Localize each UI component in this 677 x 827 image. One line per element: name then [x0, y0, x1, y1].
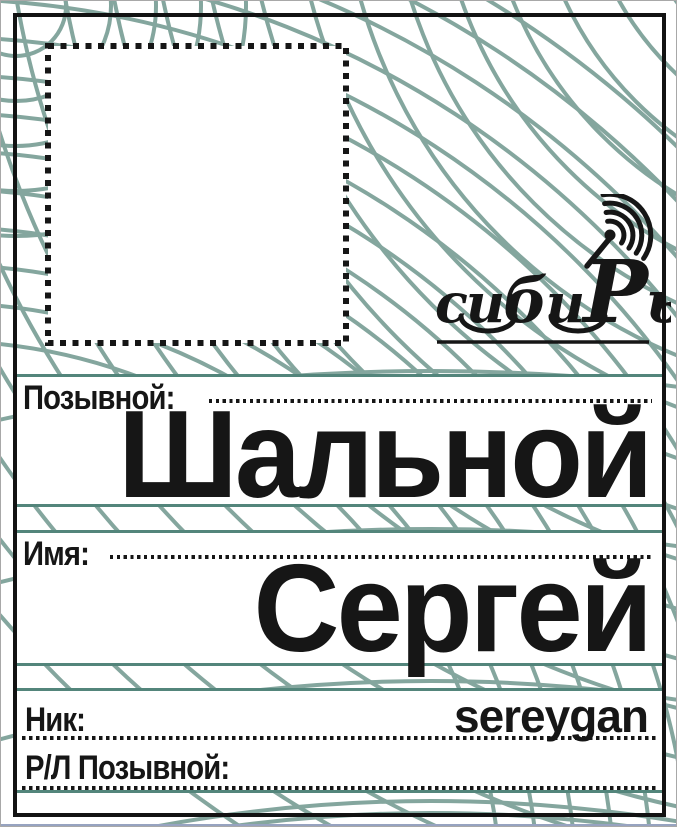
name-label: Имя:: [23, 537, 89, 571]
radio-callsign-label: Р/Л Позывной:: [25, 751, 229, 785]
name-section: Имя: Сергей: [17, 530, 662, 666]
callsign-section: Позывной: Шальной: [17, 374, 662, 507]
club-logo: сибиРь: [421, 194, 671, 359]
screenshot-bottom-edge: [1, 824, 676, 826]
nick-label: Ник:: [25, 703, 85, 737]
photo-placeholder: [45, 43, 349, 346]
badge-page: сибиРь Позывной: Шальной Имя: Сергей Ник…: [0, 0, 677, 827]
nick-section: Ник: sereygan Р/Л Позывной:: [17, 688, 662, 793]
name-value: Сергей: [253, 547, 650, 671]
nick-value: sereygan: [454, 693, 648, 739]
photo-dashed-frame: [45, 43, 349, 346]
radio-callsign-dotted-line: [22, 786, 657, 790]
callsign-value: Шальной: [118, 393, 650, 517]
